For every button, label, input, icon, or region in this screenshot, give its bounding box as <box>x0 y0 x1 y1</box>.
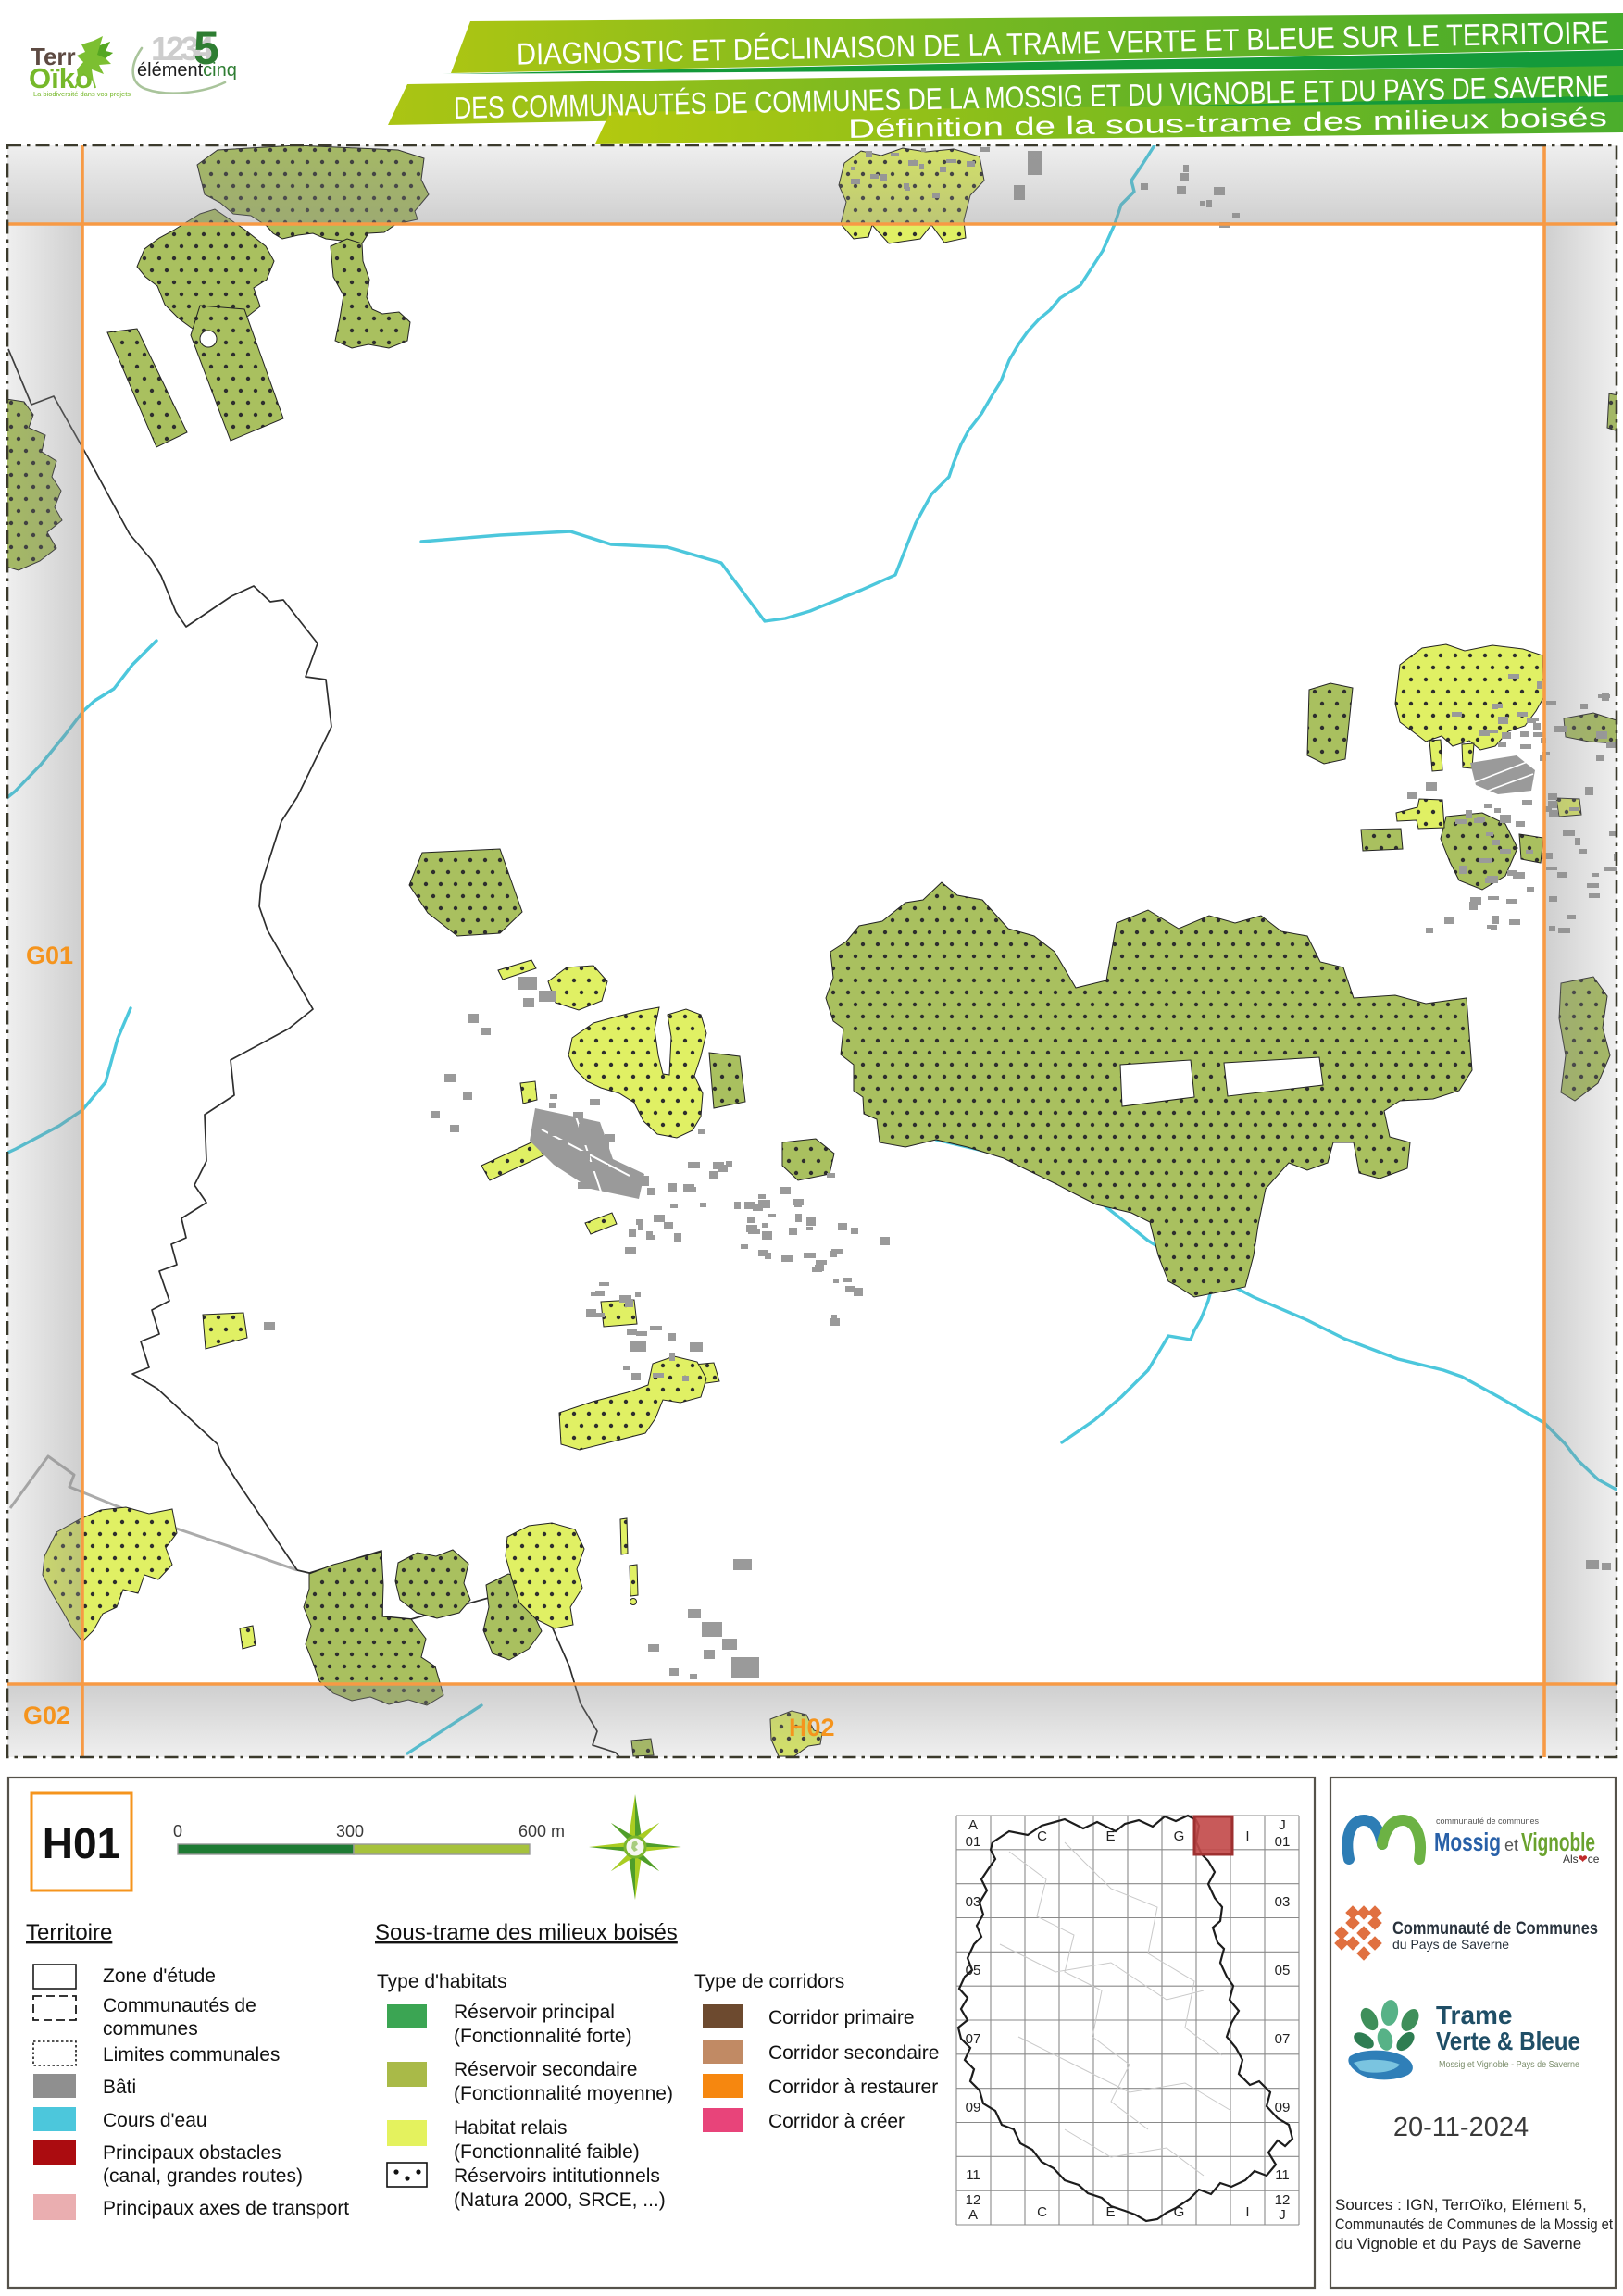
svg-text:07: 07 <box>1275 2031 1291 2047</box>
svg-text:G: G <box>1174 2204 1185 2220</box>
svg-text:Principaux obstacles: Principaux obstacles <box>103 2142 281 2164</box>
svg-text:H02: H02 <box>789 1714 835 1741</box>
svg-text:05: 05 <box>966 1963 981 1978</box>
svg-text:(Fonctionnalité forte): (Fonctionnalité forte) <box>454 2026 632 2047</box>
svg-text:Corridor à restaurer: Corridor à restaurer <box>768 2077 938 2098</box>
svg-text:La biodiversité dans vos proje: La biodiversité dans vos projets <box>33 90 131 98</box>
svg-text:Mossig et Vignoble - Pays de S: Mossig et Vignoble - Pays de Saverne <box>1439 2059 1579 2070</box>
svg-text:01: 01 <box>1275 1834 1291 1850</box>
svg-text:A: A <box>968 2207 978 2223</box>
svg-text:03: 03 <box>966 1894 981 1910</box>
svg-text:600 m: 600 m <box>518 1822 565 1841</box>
svg-text:I: I <box>1245 2204 1249 2220</box>
svg-text:Réservoirs intitutionnels: Réservoirs intitutionnels <box>454 2165 660 2187</box>
svg-text:Corridor primaire: Corridor primaire <box>768 2007 915 2028</box>
svg-text:A: A <box>968 1817 978 1833</box>
svg-text:Communautés de Communes de la: Communautés de Communes de la Mossig et <box>1335 2215 1613 2233</box>
svg-text:du Pays de Saverne: du Pays de Saverne <box>1392 1937 1509 1952</box>
svg-text:Bâti: Bâti <box>103 2077 136 2098</box>
svg-text:Trame: Trame <box>1436 2001 1513 2029</box>
svg-text:Type de corridors: Type de corridors <box>694 1971 844 1992</box>
svg-text:300: 300 <box>336 1822 364 1841</box>
svg-text:11: 11 <box>966 2167 980 2183</box>
svg-text:G02: G02 <box>23 1702 70 1729</box>
svg-text:Verte & Bleue: Verte & Bleue <box>1436 2027 1580 2055</box>
svg-text:Zone d'étude: Zone d'étude <box>103 1965 216 1987</box>
svg-text:05: 05 <box>1275 1963 1291 1978</box>
svg-text:Corridor secondaire: Corridor secondaire <box>768 2042 939 2064</box>
svg-text:0: 0 <box>173 1822 182 1841</box>
svg-text:12: 12 <box>1275 2192 1291 2208</box>
svg-text:élémentcinq: élémentcinq <box>137 60 237 81</box>
svg-text:11: 11 <box>1275 2167 1290 2183</box>
svg-text:(Fonctionnalité moyenne): (Fonctionnalité moyenne) <box>454 2083 673 2104</box>
svg-text:Sources : IGN, TerrOïko, Eléme: Sources : IGN, TerrOïko, Elément 5, <box>1335 2196 1587 2214</box>
svg-text:et: et <box>1504 1836 1518 1854</box>
svg-text:Communauté de Communes: Communauté de Communes <box>1392 1919 1598 1939</box>
svg-text:C: C <box>1037 1828 1047 1844</box>
svg-text:G01: G01 <box>26 942 73 969</box>
svg-text:Communautés de: Communautés de <box>103 1995 256 2016</box>
svg-text:(Fonctionnalité faible): (Fonctionnalité faible) <box>454 2141 640 2163</box>
svg-text:Corridor à créer: Corridor à créer <box>768 2111 905 2132</box>
svg-text:01: 01 <box>966 1834 981 1850</box>
svg-text:09: 09 <box>1275 2100 1291 2115</box>
svg-text:J: J <box>1279 1817 1286 1833</box>
svg-text:I: I <box>1245 1828 1249 1844</box>
svg-text:03: 03 <box>1275 1894 1291 1910</box>
svg-text:09: 09 <box>966 2100 981 2115</box>
svg-text:G: G <box>1174 1828 1185 1844</box>
svg-text:C: C <box>1037 2204 1047 2220</box>
svg-text:12: 12 <box>966 2192 981 2208</box>
svg-text:Réservoir secondaire: Réservoir secondaire <box>454 2059 637 2080</box>
svg-text:Als❤ce: Als❤ce <box>1563 1853 1600 1865</box>
svg-text:communauté de communes: communauté de communes <box>1436 1816 1540 1826</box>
svg-text:du Vignoble et du Pays de Save: du Vignoble et du Pays de Saverne <box>1335 2235 1581 2252</box>
svg-text:(canal, grandes routes): (canal, grandes routes) <box>103 2165 303 2187</box>
svg-text:07: 07 <box>966 2031 981 2047</box>
svg-text:Type d'habitats: Type d'habitats <box>377 1971 507 1992</box>
svg-text:J: J <box>1279 2207 1286 2223</box>
svg-text:H01: H01 <box>43 1819 120 1867</box>
svg-text:communes: communes <box>103 2018 198 2040</box>
svg-text:E: E <box>1105 1828 1115 1844</box>
svg-text:Limites communales: Limites communales <box>103 2044 280 2065</box>
svg-text:Mossig: Mossig <box>1434 1828 1501 1856</box>
svg-text:Territoire: Territoire <box>26 1920 112 1945</box>
svg-text:20-11-2024: 20-11-2024 <box>1393 2113 1529 2142</box>
svg-text:(Natura 2000, SRCE, ...): (Natura 2000, SRCE, ...) <box>454 2190 666 2211</box>
svg-text:Habitat relais: Habitat relais <box>454 2117 568 2139</box>
svg-text:Cours d'eau: Cours d'eau <box>103 2110 207 2131</box>
svg-text:Réservoir principal: Réservoir principal <box>454 2002 615 2023</box>
svg-text:E: E <box>1105 2204 1115 2220</box>
svg-text:Sous-trame des milieux boisés: Sous-trame des milieux boisés <box>375 1920 678 1945</box>
svg-text:Principaux axes de transport: Principaux axes de transport <box>103 2198 349 2219</box>
